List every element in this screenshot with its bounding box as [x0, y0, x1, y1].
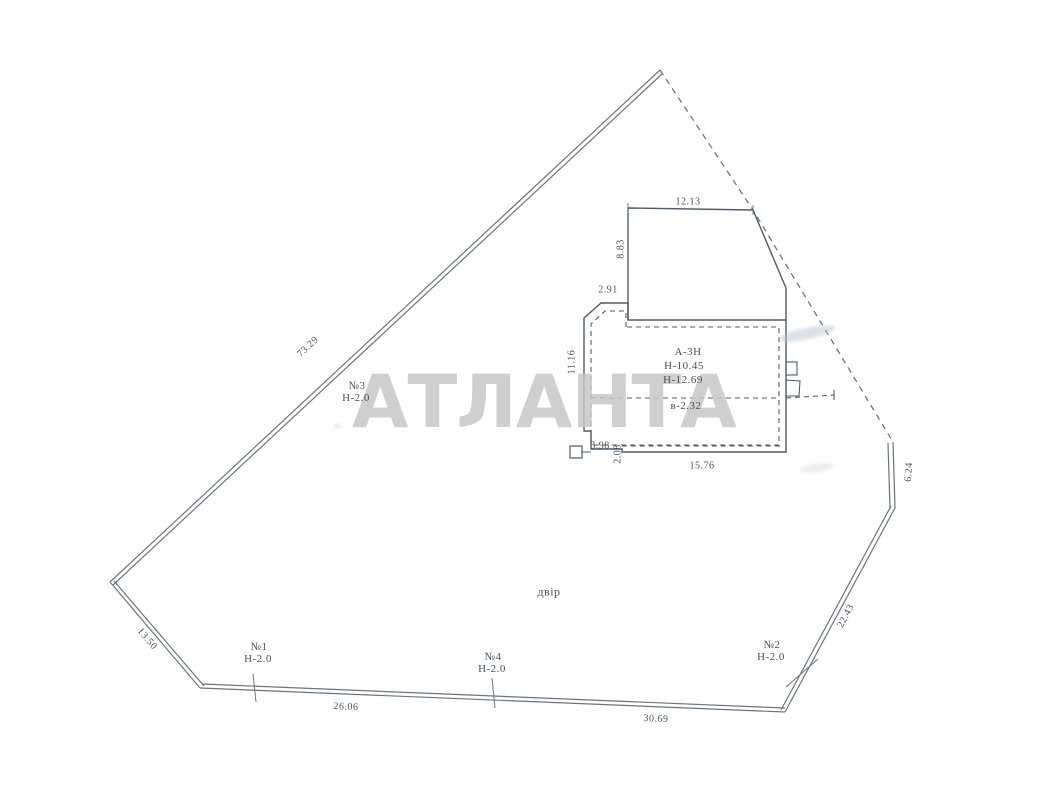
boundary-segment-east — [888, 442, 895, 509]
boundary-segment-se — [781, 506, 895, 712]
fence-4-tick — [492, 678, 495, 708]
fence-1-tick — [253, 674, 256, 702]
building-upper-block — [628, 208, 786, 320]
watermark-atlanta: АТЛАНТА — [352, 370, 712, 436]
building-right-step-1 — [786, 362, 797, 375]
fence-ticks — [253, 659, 818, 708]
scan-smudge-3 — [335, 424, 340, 428]
building-right-step-2 — [786, 380, 800, 396]
fence-2-tick — [786, 659, 818, 687]
building-corner-post — [570, 446, 582, 458]
boundary-segment-south — [200, 684, 785, 712]
boundary-segment-sw — [110, 581, 204, 688]
site-plan-page: АТЛАНТА 73.2913.5026.0630.6922.436.2412.… — [0, 0, 1054, 800]
boundary-segment-nw — [110, 70, 662, 585]
